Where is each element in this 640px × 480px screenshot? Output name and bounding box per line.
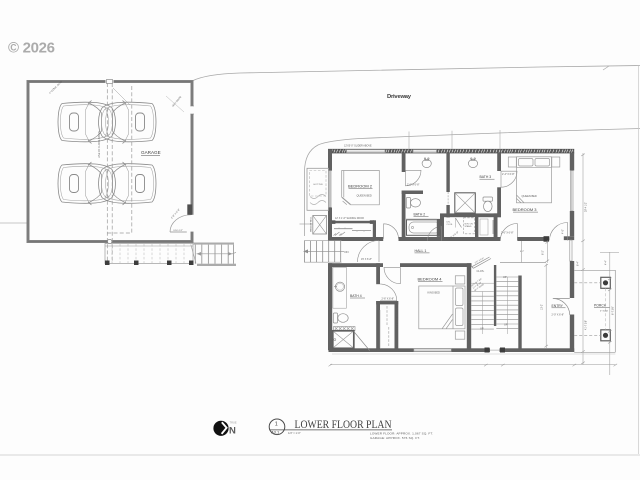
svg-text:2'-4″ X 6'-8″: 2'-4″ X 6'-8″: [502, 173, 515, 176]
svg-text:CLOS.: CLOS.: [477, 269, 485, 273]
svg-text:GARAGE: APPROX. 576 SQ. FT.: GARAGE: APPROX. 576 SQ. FT.: [370, 436, 420, 440]
svg-text:UP: UP: [504, 322, 508, 326]
svg-text:GARAGE: GARAGE: [141, 150, 161, 155]
svg-text:41'-7 3/8″: 41'-7 3/8″: [585, 320, 588, 330]
svg-text:1: 1: [275, 422, 278, 428]
svg-text:4″ SLAB: 4″ SLAB: [600, 310, 608, 313]
svg-text:6'-7 3/8″: 6'-7 3/8″: [612, 306, 615, 315]
svg-text:BATH 3: BATH 3: [480, 175, 492, 179]
svg-text:6'-2″: 6'-2″: [520, 251, 524, 253]
svg-text:HOT TUB: HOT TUB: [314, 184, 324, 186]
svg-text:QUEEN BED: QUEEN BED: [522, 194, 537, 198]
svg-text:STAND: STAND: [465, 225, 472, 228]
svg-text:BEDROOM 4: BEDROOM 4: [418, 277, 443, 282]
svg-text:12'X5'-0″ SLIDER ABOVE: 12'X5'-0″ SLIDER ABOVE: [344, 145, 372, 148]
svg-text:6'-2″: 6'-2″: [542, 250, 545, 255]
svg-text:15' X 6'-8″: 15' X 6'-8″: [361, 258, 372, 261]
svg-text:BATH 2: BATH 2: [414, 213, 426, 217]
svg-text:2'-6″ X 6'-8″: 2'-6″ X 6'-8″: [501, 232, 514, 235]
svg-text:N: N: [229, 426, 236, 437]
svg-text:QUEEN BED: QUEEN BED: [357, 194, 372, 198]
svg-text:12' X 1'-6″ SLIDING DOOR: 12' X 1'-6″ SLIDING DOOR: [335, 217, 364, 220]
svg-text:LINE OF FLOOR ABOVE: LINE OF FLOOR ABOVE: [98, 131, 101, 158]
svg-text:2'-6″ X 6'-8″: 2'-6″ X 6'-8″: [407, 183, 420, 186]
svg-text:BEDROOM 3: BEDROOM 3: [513, 207, 538, 212]
svg-text:UP: UP: [480, 327, 484, 331]
svg-text:2'-6″ X 6'-8″: 2'-6″ X 6'-8″: [382, 297, 395, 300]
svg-text:DN 5 1/2″: DN 5 1/2″: [174, 230, 184, 232]
svg-text:15' X 2'-0″ BI-PASS DOOR: 15' X 2'-0″ BI-PASS DOOR: [396, 301, 399, 330]
svg-text:© 2026: © 2026: [8, 40, 55, 57]
svg-text:4'-0″: 4'-0″: [562, 229, 565, 234]
svg-text:ENTRY: ENTRY: [552, 304, 564, 308]
svg-text:DN: DN: [345, 250, 349, 254]
svg-text:BEDROOM 2: BEDROOM 2: [348, 184, 373, 189]
svg-text:LOWER FLOOR: APPROX. 1,067 SQ.: LOWER FLOOR: APPROX. 1,067 SQ. FT.: [370, 431, 433, 435]
svg-text:WINDOW WELL: WINDOW WELL: [310, 216, 312, 232]
svg-text:4'-4″: 4'-4″: [605, 260, 608, 265]
svg-text:2'-0″ X 6'-8″: 2'-0″ X 6'-8″: [552, 314, 565, 317]
svg-text:CLOS.: CLOS.: [447, 224, 454, 226]
svg-text:KING BED: KING BED: [428, 290, 441, 294]
svg-text:29'-4 1/2″: 29'-4 1/2″: [585, 202, 588, 212]
svg-text:Driveway: Driveway: [387, 94, 412, 100]
svg-text:LOWER FLOOR PLAN: LOWER FLOOR PLAN: [295, 417, 392, 431]
svg-text:HALL 1: HALL 1: [415, 249, 427, 253]
svg-text:1/4″ = 1'-0″: 1/4″ = 1'-0″: [288, 431, 301, 435]
svg-text:BATH 4: BATH 4: [350, 294, 362, 298]
svg-text:UP: UP: [503, 275, 507, 279]
svg-text:TRUE: TRUE: [230, 421, 237, 425]
svg-text:13'-2″: 13'-2″: [541, 304, 544, 310]
svg-text:6'-4″: 6'-4″: [577, 261, 580, 266]
svg-text:PORCH: PORCH: [594, 304, 607, 308]
